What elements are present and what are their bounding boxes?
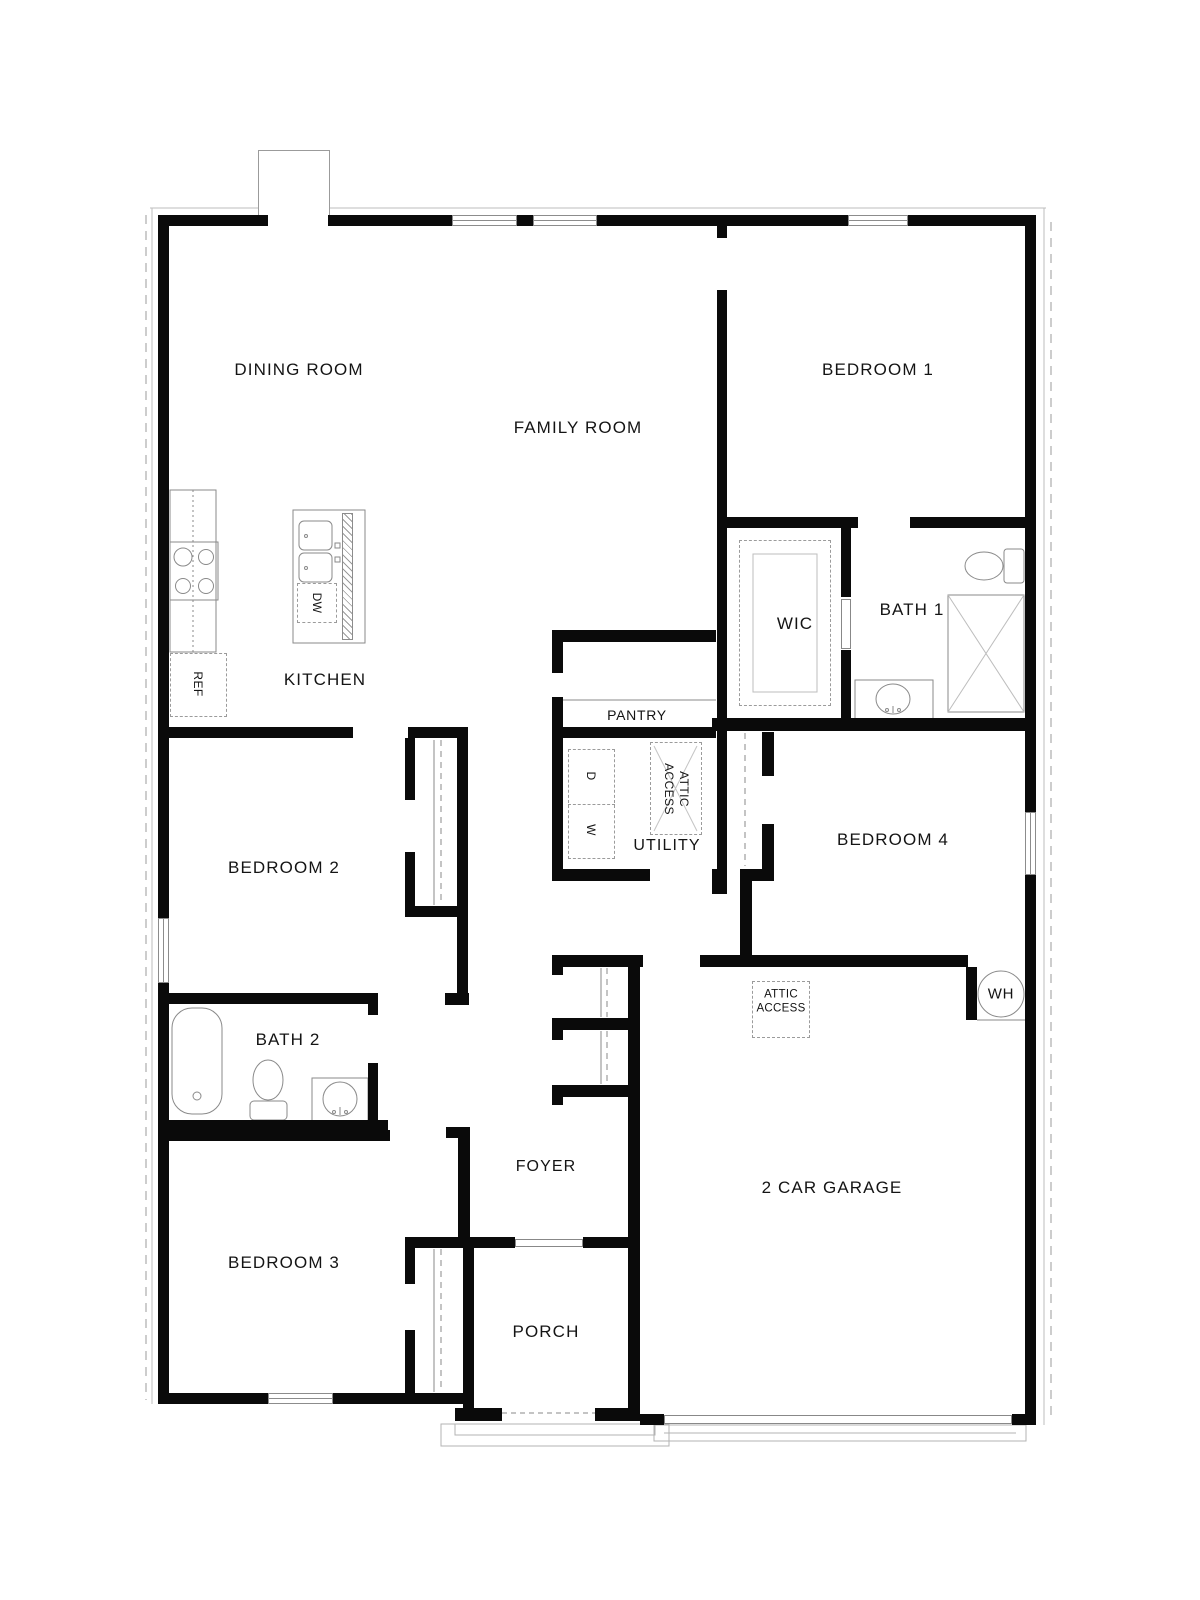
wall-segment (552, 727, 716, 738)
attic-access-line2: ACCESS (756, 1002, 805, 1016)
window (1025, 812, 1036, 875)
wall-segment (552, 1018, 563, 1040)
attic-access-label-garage: ATTIC ACCESS (756, 988, 805, 1017)
window (268, 1393, 333, 1404)
room-label-bedroom4: BEDROOM 4 (837, 830, 949, 850)
wall-segment (908, 215, 1036, 226)
wall-segment (333, 1393, 465, 1404)
wall-segment (552, 630, 563, 673)
room-label-foyer: FOYER (516, 1158, 577, 1176)
front-door-threshold (515, 1239, 583, 1247)
wall-segment (457, 727, 468, 993)
window (158, 918, 169, 983)
wall-segment (595, 1408, 640, 1421)
wall-segment (455, 1408, 502, 1421)
room-label-bedroom1: BEDROOM 1 (822, 360, 934, 380)
wall-segment (640, 1414, 664, 1425)
washer-label: W (584, 824, 598, 836)
room-label-bath1: BATH 1 (880, 600, 945, 620)
window (848, 215, 908, 226)
room-label-kitchen: KITCHEN (284, 670, 366, 690)
washer-dryer-divider (568, 804, 615, 805)
wall-segment (552, 1085, 628, 1097)
wall-segment (583, 1237, 640, 1248)
wall-segment (368, 993, 378, 1015)
chimney-outline (258, 150, 330, 217)
refrigerator-label: REF (191, 671, 205, 696)
wall-segment (517, 215, 533, 226)
wall-segment (966, 967, 977, 1020)
attic-access-line2: ACCESS (661, 763, 676, 815)
wall-segment (158, 1130, 390, 1141)
wall-segment (463, 1248, 474, 1408)
dishwasher-label: DW (310, 593, 324, 614)
attic-access-label-utility: ATTIC ACCESS (661, 763, 691, 815)
wall-segment (158, 215, 169, 918)
wall-segment (405, 1330, 415, 1393)
wall-segment (158, 983, 169, 1404)
garage-door (664, 1415, 1012, 1424)
wall-segment (158, 1393, 268, 1404)
wall-segment (552, 1018, 628, 1030)
floor-plan: DINING ROOM FAMILY ROOM BEDROOM 1 KITCHE… (0, 0, 1200, 1600)
wall-segment (458, 1127, 470, 1248)
wall-segment (552, 738, 563, 881)
room-label-bedroom3: BEDROOM 3 (228, 1253, 340, 1273)
room-label-utility: UTILITY (633, 837, 700, 855)
wall-segment (405, 906, 468, 917)
wall-segment (446, 1127, 470, 1138)
wall-segment (700, 955, 968, 967)
room-label-pantry: PANTRY (607, 707, 667, 723)
wall-segment (717, 290, 727, 881)
wall-segment (158, 993, 378, 1004)
wall-segment (628, 963, 640, 1414)
wall-segment (445, 993, 469, 1005)
wall-segment (158, 215, 268, 226)
wall-segment (552, 1085, 563, 1105)
wall-segment (328, 215, 452, 226)
window (533, 215, 597, 226)
room-label-dining: DINING ROOM (234, 360, 363, 380)
wall-segment (405, 738, 415, 800)
wall-segment (841, 650, 851, 718)
room-label-bedroom2: BEDROOM 2 (228, 858, 340, 878)
attic-access-line1: ATTIC (676, 763, 691, 815)
window (452, 215, 517, 226)
wall-segment (712, 718, 1036, 731)
wall-segment (740, 869, 774, 881)
wall-segment (1025, 875, 1036, 1425)
wall-segment (597, 215, 848, 226)
wall-segment (405, 1248, 415, 1284)
wall-segment (405, 852, 415, 906)
water-heater-label: WH (988, 986, 1014, 1003)
wall-segment (405, 1237, 515, 1248)
wall-segment (841, 528, 851, 597)
room-label-bath2: BATH 2 (256, 1030, 321, 1050)
wall-segment (158, 727, 353, 738)
room-label-family: FAMILY ROOM (514, 418, 643, 438)
island-counter-hatch (342, 513, 353, 640)
wall-segment (552, 630, 716, 642)
wall-segment (552, 955, 563, 975)
dryer-label: D (584, 771, 598, 780)
room-label-porch: PORCH (513, 1322, 580, 1342)
wall-segment (552, 869, 650, 881)
wic-door (841, 599, 851, 649)
wall-segment (712, 869, 727, 894)
wall-segment (910, 517, 1036, 528)
attic-access-line1: ATTIC (756, 988, 805, 1002)
wall-segment (717, 226, 727, 238)
room-label-wic: WIC (777, 614, 813, 634)
wall-segment (1012, 1414, 1036, 1425)
wall-segment (740, 881, 752, 957)
room-label-garage: 2 CAR GARAGE (762, 1178, 903, 1198)
wall-segment (727, 517, 858, 528)
wall-segment (762, 732, 774, 776)
wall-segment (762, 824, 774, 870)
